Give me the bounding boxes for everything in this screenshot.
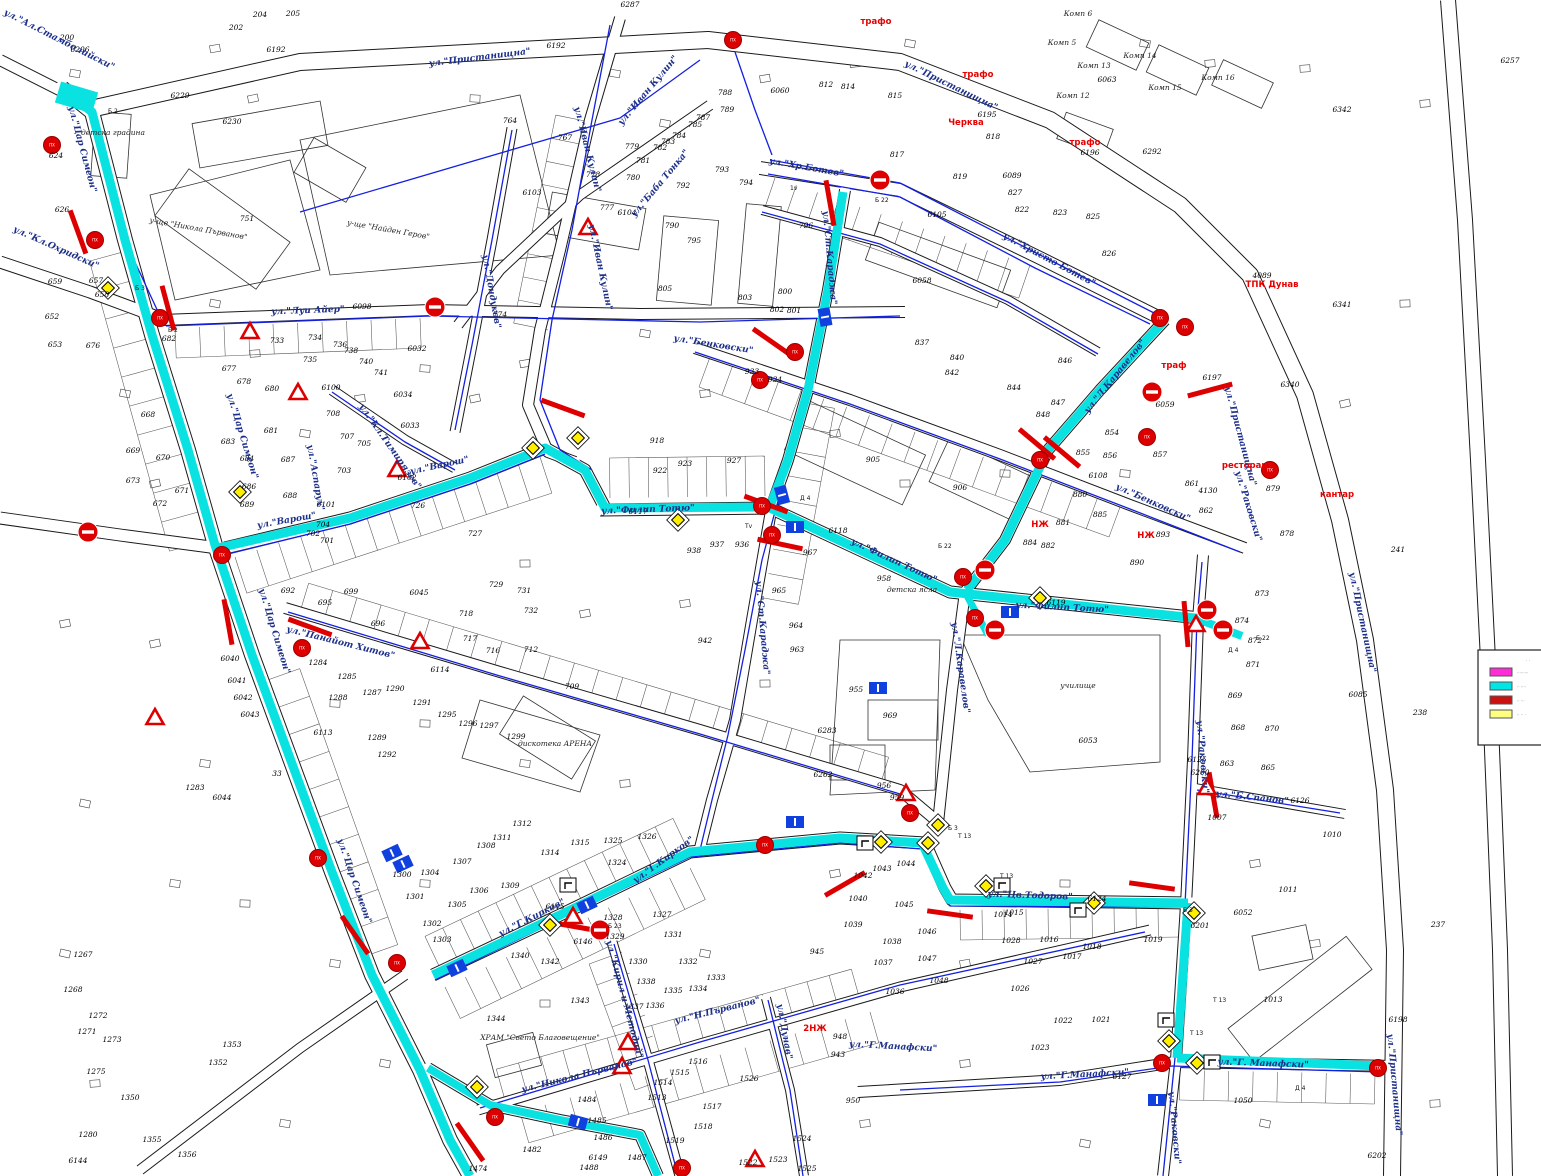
- parcel-number: 878: [1280, 529, 1295, 538]
- svg-text:ПХ: ПХ: [757, 378, 763, 383]
- parcel-number: 884: [1023, 538, 1038, 547]
- street-name: ул."Христо Ботев": [1000, 231, 1097, 289]
- hydrant-icon: ПХ: [1152, 310, 1169, 327]
- parcel-number: 1516: [688, 1057, 707, 1066]
- parcel-number: 1027: [1023, 957, 1042, 966]
- parcel-number: 708: [326, 409, 341, 418]
- parcel-number: 1308: [476, 841, 495, 850]
- parcel-number: 1022: [1053, 1016, 1072, 1025]
- parcel-number: 4089: [1251, 271, 1271, 280]
- svg-text:ПХ: ПХ: [960, 575, 966, 580]
- parcel-number: 764: [503, 116, 518, 125]
- closure-bar-icon: [1129, 880, 1175, 891]
- note-label: Т 13: [957, 833, 971, 840]
- parcel-number: 692: [281, 586, 296, 595]
- parcel-number: 812: [819, 80, 834, 89]
- parcel-number: 6198: [1388, 1015, 1407, 1024]
- parcel-number: 933: [745, 367, 760, 376]
- no-entry-icon: [425, 297, 445, 317]
- parcel-number: 1273: [102, 1035, 121, 1044]
- parcel-number: 1292: [377, 750, 396, 759]
- parcel-number: 6283: [817, 726, 836, 735]
- parcel-number: 1474: [468, 1164, 487, 1173]
- parcel-number: 6052: [1233, 908, 1252, 917]
- parcel-number: 1046: [917, 927, 936, 936]
- parcel-number: 1285: [337, 672, 356, 681]
- parcel-number: 733: [270, 336, 285, 345]
- parcel-number: 6124: [1087, 894, 1106, 903]
- landmark-label: Комп 15: [1147, 83, 1182, 92]
- parcel-number: 672: [153, 499, 168, 508]
- note-label: Б 3: [948, 825, 958, 832]
- parcel-number: 1342: [540, 957, 559, 966]
- legend-label: ·· ·· ·: [1517, 713, 1526, 718]
- parcel-number: 1039: [843, 920, 862, 929]
- parcel-number: 1287: [362, 688, 381, 697]
- hydrant-icon: ПХ: [310, 850, 327, 867]
- parcel-number: 1042: [853, 871, 872, 880]
- parcel-number: 793: [715, 165, 730, 174]
- parcel-number: 942: [698, 636, 713, 645]
- parcel-number: 1284: [308, 658, 327, 667]
- parcel-number: 854: [1105, 428, 1120, 437]
- hydrant-icon: ПХ: [152, 310, 169, 327]
- parcel-number: 677: [222, 364, 237, 373]
- landmark-label: у-ще "Никола Първанов": [148, 215, 248, 241]
- parcel-number: 958: [877, 574, 892, 583]
- parcel-number: 1519: [665, 1136, 684, 1145]
- parcel-number: 716: [486, 646, 501, 655]
- note-label: Тv: [744, 523, 753, 530]
- parcel-number: 862: [1199, 506, 1214, 515]
- street-name: ул."Н.Първанов": [673, 996, 761, 1027]
- parcel-number: 1340: [510, 951, 529, 960]
- parcel-number: 823: [1053, 208, 1068, 217]
- parcel-number: 1307: [452, 857, 471, 866]
- parcel-number: 837: [915, 338, 930, 347]
- parcel-number: 906: [953, 483, 968, 492]
- parcel-number: 734: [308, 333, 323, 342]
- parcel-number: 817: [890, 150, 905, 159]
- parcel-number: 1300: [392, 870, 411, 879]
- no-entry-icon: [1197, 600, 1217, 620]
- parcel-number: 205: [285, 9, 301, 18]
- parcel-number: 729: [489, 580, 504, 589]
- parcel-number: 874: [1235, 616, 1250, 625]
- svg-text:ПХ: ПХ: [315, 856, 321, 861]
- parcel-number: 695: [318, 598, 333, 607]
- map-stage: ПХПХПХПХПХПХПХПХПХПХПХПХПХПХПХПХПХПХПХПХ…: [0, 0, 1541, 1176]
- parcel-number: 6149: [588, 1153, 607, 1162]
- parcel-number: 1040: [848, 894, 867, 903]
- parcel-number: 767: [558, 133, 573, 142]
- no-entry-icon: [1142, 382, 1162, 402]
- parcel-number: 934: [768, 375, 783, 384]
- parcel-number: 1013: [1263, 995, 1282, 1004]
- note-label: Т 13: [1189, 1030, 1203, 1037]
- parcel-number: 819: [953, 172, 968, 181]
- parcel-number: 1336: [645, 1001, 664, 1010]
- parcel-number: 6192: [266, 45, 285, 54]
- parcel-number: 805: [658, 284, 673, 293]
- parcel-number: 847: [1051, 398, 1066, 407]
- parcel-number: 1350: [120, 1093, 139, 1102]
- red-labels: трафотрафотрафоЧеркваТПК Дунавтрафрестор…: [803, 17, 1354, 1034]
- hydrant-icon: ПХ: [757, 837, 774, 854]
- parcel-number: 1291: [412, 698, 431, 707]
- parcel-number: 1290: [385, 684, 404, 693]
- parcel-number: 202: [228, 23, 244, 32]
- parcel-number: 801: [787, 306, 801, 315]
- note-label: Т 13: [999, 873, 1013, 880]
- parcel-number: 1327: [652, 910, 671, 919]
- legend-swatch: [1490, 696, 1512, 704]
- parcel-number: 699: [344, 587, 359, 596]
- street-name: ул."Б.Спанов": [1214, 789, 1289, 807]
- parcel-number: 890: [1130, 558, 1145, 567]
- sign-blue-icon: [869, 682, 887, 694]
- parcel-number: 1283: [185, 783, 204, 792]
- parcel-number: 1267: [73, 950, 92, 959]
- svg-text:ПХ: ПХ: [762, 843, 768, 848]
- parcel-number: 779: [625, 142, 640, 151]
- parcel-number: 950: [846, 1096, 861, 1105]
- landmark-label: Комп 14: [1122, 51, 1157, 60]
- parcel-number: 1487: [627, 1153, 646, 1162]
- landmark-label: Комп 12: [1055, 91, 1090, 100]
- legend-label: ·· ····: [1517, 685, 1526, 690]
- parcel-number: 967: [803, 548, 818, 557]
- red-annotation: ресторант: [1222, 461, 1272, 471]
- parcel-number: 727: [468, 529, 483, 538]
- parcel-number: 669: [126, 446, 141, 455]
- parcel-number: 704: [316, 520, 331, 529]
- parcel-number: 1017: [1062, 952, 1081, 961]
- hydrant-icon: ПХ: [725, 32, 742, 49]
- no-entry-icon: [1213, 620, 1233, 640]
- parcel-number: 6192: [546, 41, 565, 50]
- parcel-number: 6053: [1078, 736, 1097, 745]
- parcel-number: 653: [48, 340, 63, 349]
- hydrant-icon: ПХ: [1032, 452, 1049, 469]
- parcel-number: 1007: [1207, 813, 1226, 822]
- svg-text:ПХ: ПХ: [972, 616, 978, 621]
- parcel-number: 1288: [328, 693, 347, 702]
- parcel-number: 6114: [430, 665, 449, 674]
- parcel-number: 923: [678, 459, 693, 468]
- parcel-number: 885: [1093, 510, 1108, 519]
- parcel-number: 33: [272, 769, 282, 778]
- no-entry-icon: [975, 560, 995, 580]
- parcel-number: 6103: [522, 188, 541, 197]
- parcel-number: 1016: [1039, 935, 1058, 944]
- hydrant-icon: ПХ: [1177, 319, 1194, 336]
- warning-triangle-icon: [242, 323, 259, 338]
- parcel-number: 1486: [593, 1133, 612, 1142]
- parcel-number: 882: [1041, 541, 1056, 550]
- parcel-number: 1343: [570, 996, 589, 1005]
- parcel-number: 1330: [628, 957, 647, 966]
- red-annotation: НЖ: [1137, 531, 1155, 541]
- parcel-number: 1289: [367, 733, 386, 742]
- svg-text:ПХ: ПХ: [679, 1166, 685, 1171]
- svg-text:ПХ: ПХ: [92, 238, 98, 243]
- parcel-number: 922: [653, 466, 668, 475]
- sign-blue-icon: [1148, 1094, 1166, 1106]
- parcel-number: 626: [55, 205, 70, 214]
- parcel-number: 6032: [407, 344, 426, 353]
- parcel-number: 1306: [469, 886, 488, 895]
- parcel-number: 1019: [1143, 935, 1162, 944]
- closure-bar-icon: [68, 210, 88, 255]
- parcel-number: 857: [1153, 450, 1168, 459]
- parcel-number: 963: [790, 645, 805, 654]
- parcel-number: 6059: [1155, 400, 1174, 409]
- legend-label: ·· ···: [1517, 699, 1525, 704]
- parcel-number: 1275: [86, 1067, 105, 1076]
- street-name: ул."Филип Тотю": [848, 536, 938, 585]
- parcel-number: 840: [950, 353, 965, 362]
- parcel-number: 6042: [233, 693, 252, 702]
- parcel-number: 688: [283, 491, 298, 500]
- warning-triangle-icon: [147, 709, 164, 724]
- parcel-number: 1295: [437, 710, 456, 719]
- parcel-number: 686: [242, 482, 257, 491]
- hydrant-icon: ПХ: [87, 232, 104, 249]
- parcel-number: 1015: [1004, 908, 1023, 917]
- red-annotation: трафо: [860, 17, 891, 27]
- parcel-number: 1326: [637, 832, 656, 841]
- parcel-number: 927: [727, 456, 742, 465]
- parcel-number: 680: [265, 384, 280, 393]
- parcel-number: 238: [1412, 708, 1428, 717]
- svg-text:ПХ: ПХ: [792, 350, 798, 355]
- parcel-number: 1044: [896, 859, 915, 868]
- legend-swatch: [1490, 682, 1512, 690]
- hydrant-icon: ПХ: [1370, 1060, 1387, 1077]
- parcel-number: 936: [735, 540, 750, 549]
- legend-label: ·········: [1517, 671, 1528, 676]
- parcel-number: 683: [221, 437, 236, 446]
- red-annotation: ТПК Дунав: [1246, 280, 1299, 290]
- parcel-number: 6229: [170, 91, 189, 100]
- parcel-number: 1524: [792, 1134, 811, 1143]
- parcel-number: 965: [772, 586, 787, 595]
- parcel-number: 6201: [1190, 921, 1209, 930]
- svg-text:ПХ: ПХ: [49, 143, 55, 148]
- parcel-number: 718: [459, 609, 474, 618]
- legend: · ············ ······ ····· ·· ·: [1478, 650, 1541, 745]
- blocks-buildings: [59, 20, 1440, 1148]
- no-entry-icon: [870, 170, 890, 190]
- hydrant-icon: ПХ: [487, 1109, 504, 1126]
- parcel-number: 1028: [1001, 936, 1020, 945]
- hydrant-icon: ПХ: [214, 547, 231, 564]
- parcel-number: 818: [986, 132, 1001, 141]
- parcel-number: 881: [1056, 518, 1070, 527]
- red-annotation: трафо: [962, 70, 993, 80]
- no-entry-icon: [985, 620, 1005, 640]
- parcel-number: 856: [1103, 451, 1118, 460]
- note-label: Д 4: [800, 495, 811, 502]
- svg-text:ПХ: ПХ: [157, 316, 163, 321]
- svg-text:ПХ: ПХ: [907, 811, 913, 816]
- landmark-label: ХРАМ "Свето Благовещение": [479, 1033, 600, 1042]
- parcel-number: 1036: [885, 987, 904, 996]
- red-annotation: Черква: [948, 118, 984, 128]
- parcel-number: 6257: [1500, 56, 1519, 65]
- landmark-label: у-ще "Найден Геров": [346, 218, 431, 242]
- parcel-number: 1038: [882, 937, 901, 946]
- parcel-number: 969: [883, 711, 898, 720]
- closure-bar-icon: [541, 398, 586, 418]
- hydrant-icon: ПХ: [1154, 1055, 1171, 1072]
- parcel-number: 741: [374, 368, 388, 377]
- parcel-number: 6262: [813, 770, 832, 779]
- parcel-number: 6033: [400, 421, 419, 430]
- parcel-number: 893: [1156, 530, 1171, 539]
- parcel-number: 668: [141, 410, 156, 419]
- parcel-number: 1301: [405, 892, 424, 901]
- parcel-number: 6043: [240, 710, 259, 719]
- parcel-number: 1484: [577, 1095, 596, 1104]
- parcel-number: 1356: [177, 1150, 196, 1159]
- chamber-box-icon: [857, 836, 873, 850]
- legend-header: · ·: [1526, 658, 1530, 663]
- parcel-number: 1333: [706, 973, 725, 982]
- parcel-number: 6034: [393, 390, 412, 399]
- parcel-number: 1048: [929, 976, 948, 985]
- sign-blue-icon: [786, 521, 804, 533]
- svg-text:ПХ: ПХ: [1182, 325, 1188, 330]
- parcel-number: 738: [344, 346, 359, 355]
- parcel-number: 1305: [447, 900, 466, 909]
- parcel-number: 681: [264, 426, 278, 435]
- parcel-number: 792: [676, 181, 691, 190]
- parcel-number: 6197: [1202, 373, 1221, 382]
- parcel-number: 800: [778, 287, 793, 296]
- note-label: Б 23: [608, 923, 622, 930]
- parcel-number: 1272: [88, 1011, 107, 1020]
- parcel-number: 702: [306, 529, 321, 538]
- hydrant-icon: ПХ: [967, 610, 984, 627]
- parcel-number: 6044: [212, 793, 231, 802]
- parcel-number: 6342: [1332, 105, 1351, 114]
- note-label: 1v: [790, 185, 798, 192]
- parcel-number: 1297: [479, 721, 498, 730]
- svg-text:ПХ: ПХ: [1157, 316, 1163, 321]
- parcel-number: 6058: [912, 276, 931, 285]
- parcel-number: 6045: [409, 588, 428, 597]
- parcel-number: 1311: [492, 833, 511, 842]
- parcel-number: 6098: [352, 302, 371, 311]
- parcel-number: 1268: [63, 985, 82, 994]
- parcel-number: 1026: [1010, 984, 1029, 993]
- hydrant-icon: ПХ: [902, 805, 919, 822]
- parcel-number: 1344: [486, 1014, 505, 1023]
- parcel-number: 784: [672, 131, 687, 140]
- parcel-number: 1515: [670, 1068, 689, 1077]
- landmark-label: Комп 16: [1200, 73, 1235, 82]
- parcel-number: 1517: [702, 1102, 721, 1111]
- parcel-number: 740: [359, 357, 374, 366]
- parcel-number: 241: [1390, 545, 1405, 554]
- parcel-number: 869: [1228, 691, 1243, 700]
- parcel-number: 842: [945, 368, 960, 377]
- parcel-number: 868: [1231, 723, 1246, 732]
- parcel-number: 1513: [647, 1093, 666, 1102]
- landmark-label: Комп 5: [1047, 38, 1077, 47]
- parcel-number: 787: [696, 113, 711, 122]
- svg-text:ПХ: ПХ: [219, 553, 225, 558]
- parcel-number: 731: [517, 586, 531, 595]
- parcel-number: 1522: [738, 1158, 757, 1167]
- hydrant-icon: ПХ: [389, 955, 406, 972]
- parcel-number: 701: [320, 536, 334, 545]
- chamber-box-icon: [1070, 903, 1086, 917]
- parcel-number: 689: [240, 500, 255, 509]
- landmark-label: училище: [1059, 681, 1096, 690]
- red-annotation: траф: [1161, 361, 1186, 371]
- svg-text:ПХ: ПХ: [1159, 1061, 1165, 1066]
- street-name: ул."Иван Кулин": [616, 54, 681, 128]
- parcel-number: 1045: [894, 900, 913, 909]
- parcel-number: 1303: [432, 935, 451, 944]
- street-name: ул."Иван Кулин": [586, 223, 614, 312]
- street-name: ул."Цар Симеон": [224, 391, 260, 480]
- parcel-number: 1271: [77, 1027, 96, 1036]
- svg-text:ПХ: ПХ: [730, 38, 736, 43]
- parcel-number: 1523: [768, 1155, 787, 1164]
- svg-text:ПХ: ПХ: [299, 646, 305, 651]
- parcel-number: 673: [126, 476, 141, 485]
- note-label: Б 2: [168, 327, 178, 334]
- note-label: Б 22: [875, 197, 889, 204]
- parcel-number: 863: [1220, 759, 1235, 768]
- parcel-number: 796: [799, 221, 814, 230]
- parcel-number: 1010: [1322, 830, 1341, 839]
- parcel-number: 873: [1255, 589, 1270, 598]
- parcel-number: 777: [600, 203, 615, 212]
- landmark-label: детска ясла: [887, 585, 937, 594]
- parcel-number: 659: [48, 277, 63, 286]
- parcel-number: 1023: [1030, 1043, 1049, 1052]
- hydrant-icon: ПХ: [294, 640, 311, 657]
- legend-swatch: [1490, 710, 1512, 718]
- parcel-number: 726: [411, 501, 426, 510]
- parcel-number: 705: [357, 439, 372, 448]
- parcel-number: 6196: [1080, 148, 1099, 157]
- parcel-number: 1309: [500, 881, 519, 890]
- svg-text:ПХ: ПХ: [1037, 458, 1043, 463]
- parcel-number: 1338: [636, 977, 655, 986]
- parcel-number: 794: [739, 178, 754, 187]
- street-name: ул."Никола Първанов": [520, 1057, 639, 1096]
- parcel-number: 703: [337, 466, 352, 475]
- parcel-number: 1011: [1278, 885, 1297, 894]
- landmark-label: детска градина: [81, 128, 145, 137]
- parcel-number: 1331: [663, 930, 682, 939]
- parcel-number: 6041: [227, 676, 246, 685]
- parcel-number: 822: [1015, 205, 1030, 214]
- parcel-number: 6144: [68, 1156, 87, 1165]
- chamber-box-icon: [560, 878, 576, 892]
- parcel-number: 6108: [1088, 471, 1107, 480]
- parcel-number: 861: [1185, 479, 1199, 488]
- valve-chamber-icon: [917, 832, 940, 855]
- parcel-number: 1518: [693, 1122, 712, 1131]
- parcel-number: 1304: [420, 868, 439, 877]
